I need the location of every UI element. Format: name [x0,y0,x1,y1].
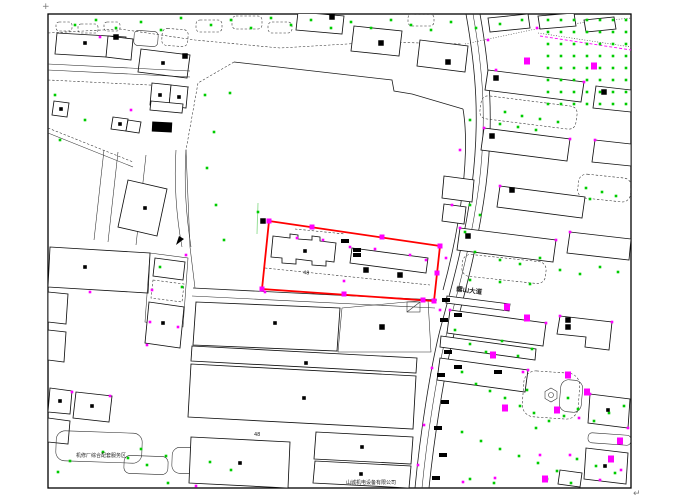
warehouse-block [188,300,431,488]
parcel-building-right [350,248,428,273]
cad-site-plan-viewport[interactable]: 螺山大道 48 48 机修厂综合配套服务区 山城机电设备有限公司 + ↵ [0,0,683,503]
return-mark-icon: ↵ [633,489,641,499]
bottom-left-annotation: 机修厂综合配套服务区 [76,452,126,459]
top-strip-buildings [196,12,631,72]
road-name-label: 螺山大道 [456,284,483,296]
plaza [521,370,580,420]
site-plan-canvas[interactable]: 螺山大道 48 48 机修厂综合配套服务区 山城机电设备有限公司 + ↵ [0,0,683,503]
pavilion-icon [545,388,557,402]
red-parcel [262,221,440,301]
right-residential-block [437,70,632,487]
bottom-center-annotation: 山城机电设备有限公司 [346,479,396,486]
plus-mark-icon: + [42,2,50,12]
dim-label-a: 48 [303,270,310,276]
dim-label-b: 48 [254,432,260,438]
left-parcels [48,128,191,348]
